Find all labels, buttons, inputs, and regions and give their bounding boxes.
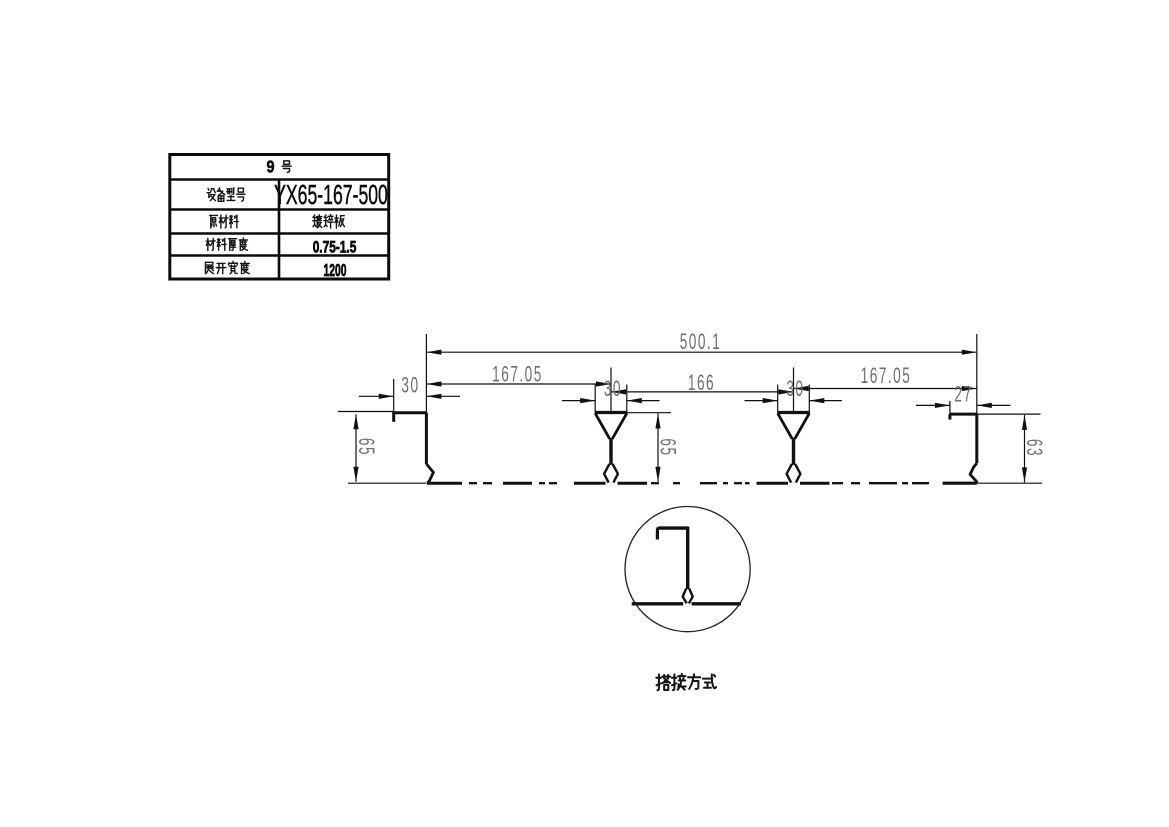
svg-text:30: 30 <box>401 372 419 397</box>
svg-text:65: 65 <box>656 438 681 456</box>
svg-text:YX65-167-500: YX65-167-500 <box>274 179 388 210</box>
svg-text:30: 30 <box>786 376 804 401</box>
svg-text:167.05: 167.05 <box>861 362 912 387</box>
svg-text:63: 63 <box>1022 439 1047 457</box>
svg-text:0.75-1.5: 0.75-1.5 <box>313 238 357 257</box>
svg-text:167.05: 167.05 <box>492 361 543 386</box>
svg-text:166: 166 <box>688 370 715 395</box>
svg-text:9: 9 <box>266 157 274 177</box>
svg-text:1200: 1200 <box>324 262 347 281</box>
svg-text:30: 30 <box>604 376 622 401</box>
svg-text:27: 27 <box>954 381 972 406</box>
svg-text:65: 65 <box>354 438 379 456</box>
svg-text:500.1: 500.1 <box>680 329 722 354</box>
